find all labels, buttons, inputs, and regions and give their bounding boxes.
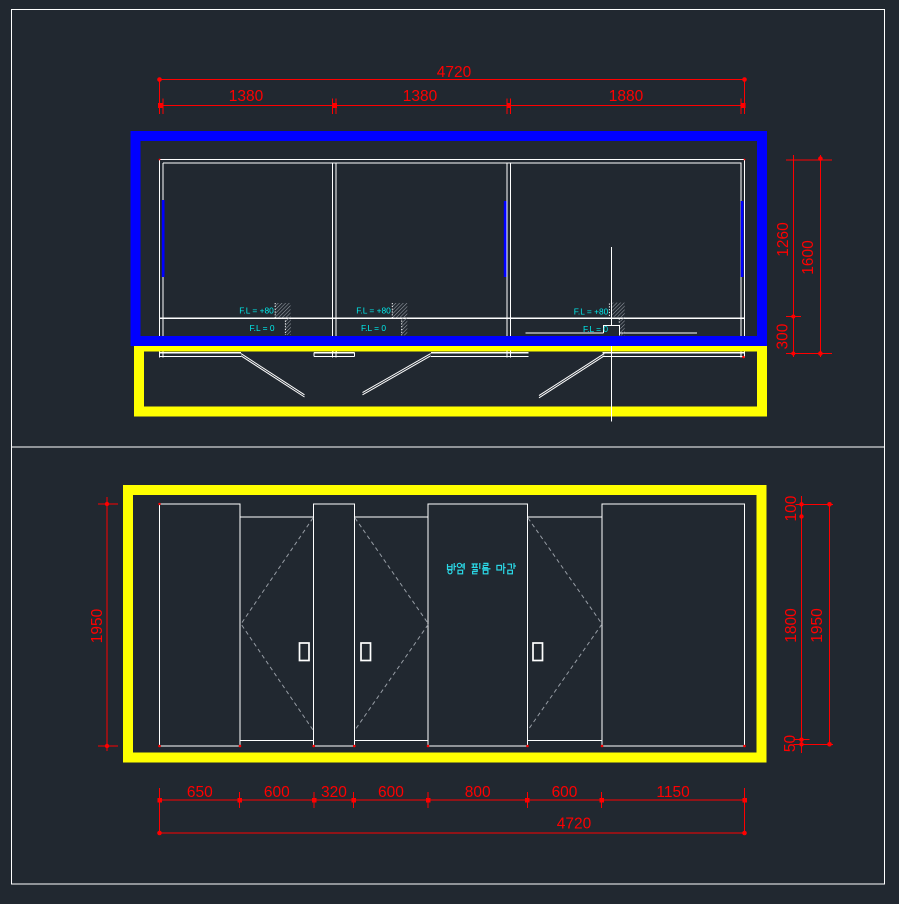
svg-text:F.L = 0: F.L = 0 <box>583 324 608 334</box>
svg-text:1600: 1600 <box>800 240 817 275</box>
svg-text:50: 50 <box>782 735 799 753</box>
svg-text:1800: 1800 <box>783 608 800 643</box>
svg-text:320: 320 <box>321 784 347 801</box>
svg-text:1880: 1880 <box>609 88 644 105</box>
svg-text:600: 600 <box>378 784 404 801</box>
svg-text:650: 650 <box>187 784 213 801</box>
svg-text:F.L = +80: F.L = +80 <box>574 307 609 317</box>
svg-text:4720: 4720 <box>557 816 592 833</box>
svg-text:300: 300 <box>775 323 792 349</box>
svg-text:4720: 4720 <box>437 64 472 81</box>
svg-text:F.L = 0: F.L = 0 <box>361 323 386 333</box>
svg-text:1950: 1950 <box>89 608 106 643</box>
svg-text:1950: 1950 <box>809 608 826 643</box>
svg-text:1260: 1260 <box>775 222 792 257</box>
svg-text:F.L = +80: F.L = +80 <box>239 306 274 316</box>
svg-text:800: 800 <box>465 784 491 801</box>
svg-text:1380: 1380 <box>403 88 438 105</box>
svg-text:600: 600 <box>552 784 578 801</box>
svg-text:F.L = 0: F.L = 0 <box>249 323 274 333</box>
svg-text:1380: 1380 <box>229 88 264 105</box>
svg-text:600: 600 <box>264 784 290 801</box>
svg-text:100: 100 <box>783 495 800 521</box>
svg-text:1150: 1150 <box>656 784 690 801</box>
svg-text:F.L = +80: F.L = +80 <box>356 306 391 316</box>
